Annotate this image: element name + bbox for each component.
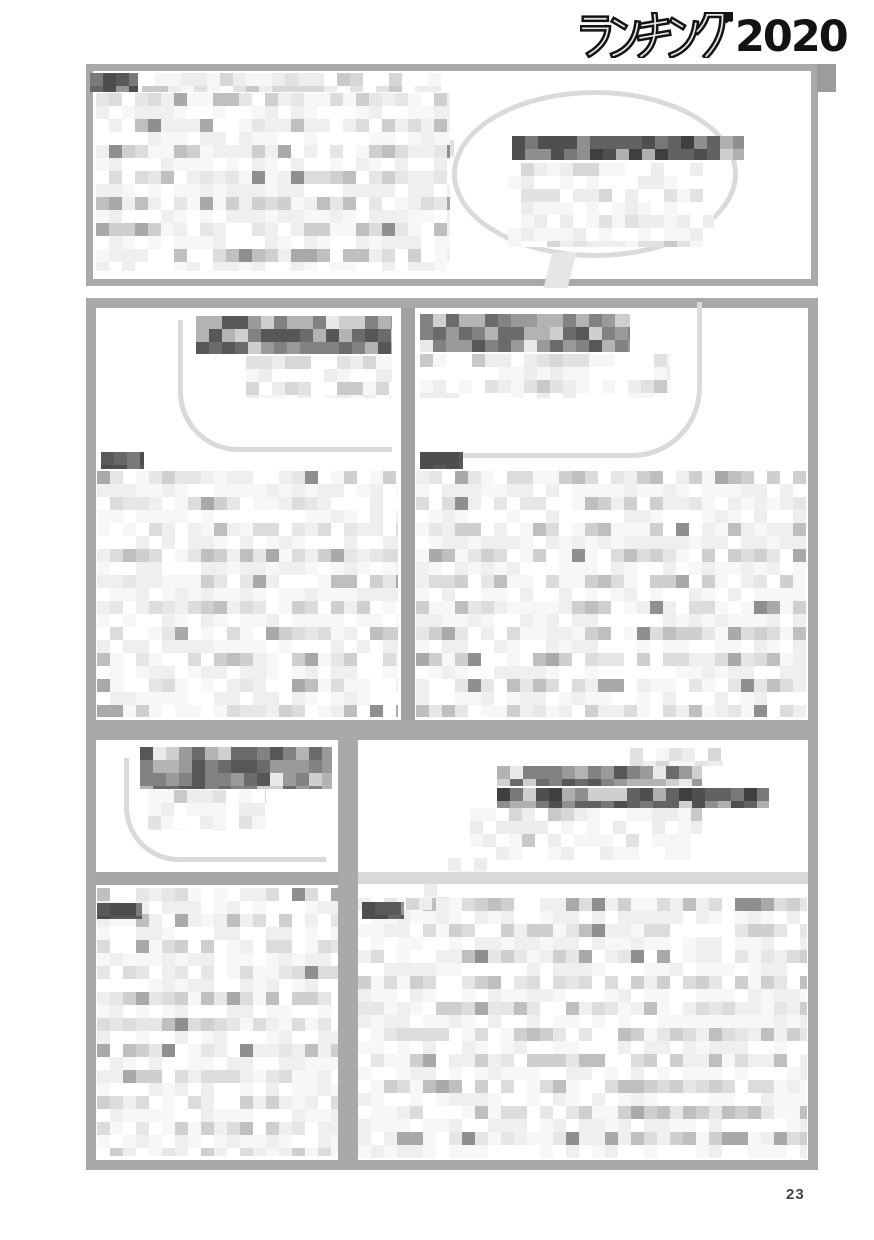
- column-divider: [401, 308, 415, 720]
- censored-right-column-label: [420, 452, 463, 469]
- bottom-right-header-divider: [358, 872, 808, 884]
- censored-left-column-label: [101, 452, 144, 469]
- censored-bottom-right-headline-1: [497, 766, 702, 786]
- censored-bubble-subtext: [508, 163, 714, 247]
- logo-year: 2020: [735, 16, 847, 58]
- censored-right-column-subhead: [420, 354, 670, 398]
- magazine-page: 2020 23: [0, 0, 874, 1240]
- censored-bottom-left-headline: [140, 747, 332, 789]
- censored-intro-top-row: [142, 73, 442, 92]
- censored-left-column-headline: [196, 316, 392, 354]
- censored-right-column-headline: [420, 314, 630, 352]
- censored-left-column-subhead: [246, 356, 392, 398]
- censored-bottom-left-body-text: [97, 888, 338, 1156]
- censored-left-column-body-text: [97, 471, 398, 717]
- censored-bubble-headline: [512, 136, 744, 160]
- bottom-left-header-divider: [96, 872, 338, 885]
- censored-bottom-right-bubble-tail-1: [448, 858, 494, 872]
- censored-intro-section-label: [90, 73, 138, 92]
- censored-bottom-right-kicker: [630, 748, 722, 766]
- censored-bottom-right-body-text: [358, 898, 807, 1158]
- magazine-logo: 2020: [580, 8, 847, 58]
- censored-bottom-right-headline-2: [497, 788, 769, 808]
- censored-bottom-right-subhead: [470, 808, 702, 860]
- censored-bottom-left-label: [97, 903, 142, 919]
- censored-intro-body-text: [96, 93, 450, 271]
- censored-bottom-right-label: [362, 902, 404, 919]
- censored-bottom-left-subhead: [148, 790, 266, 830]
- header-rule-cap: [817, 64, 836, 92]
- censored-bottom-right-bubble-tail-2: [424, 884, 456, 898]
- logo-kana-ranking: [580, 12, 733, 58]
- censored-bottom-right-bubble-tail-3: [406, 898, 432, 910]
- censored-right-column-body-text: [416, 471, 806, 717]
- page-number: 23: [786, 1186, 805, 1203]
